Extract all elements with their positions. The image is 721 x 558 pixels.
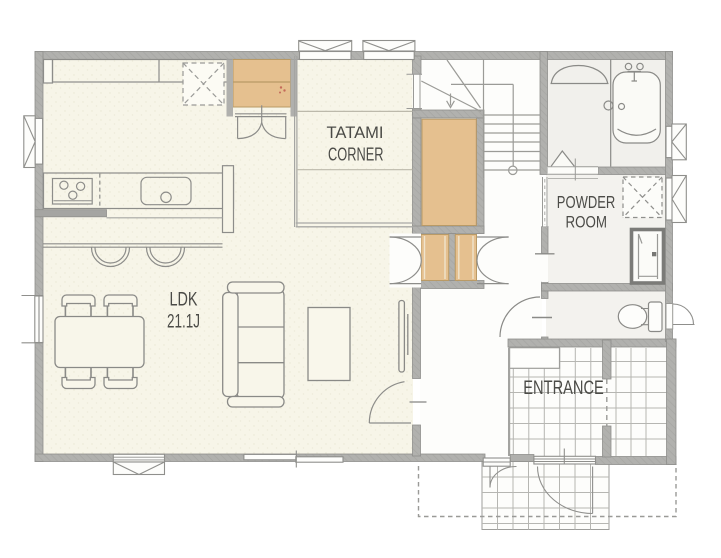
svg-text:21.1J: 21.1J bbox=[167, 311, 200, 333]
svg-text:CORNER: CORNER bbox=[328, 145, 384, 165]
svg-text:POWDER: POWDER bbox=[557, 192, 616, 212]
svg-text:ENTRANCE: ENTRANCE bbox=[523, 377, 604, 399]
svg-text:TATAMI: TATAMI bbox=[327, 123, 384, 142]
svg-text:ROOM: ROOM bbox=[566, 213, 608, 232]
svg-text:LDK: LDK bbox=[170, 289, 198, 311]
